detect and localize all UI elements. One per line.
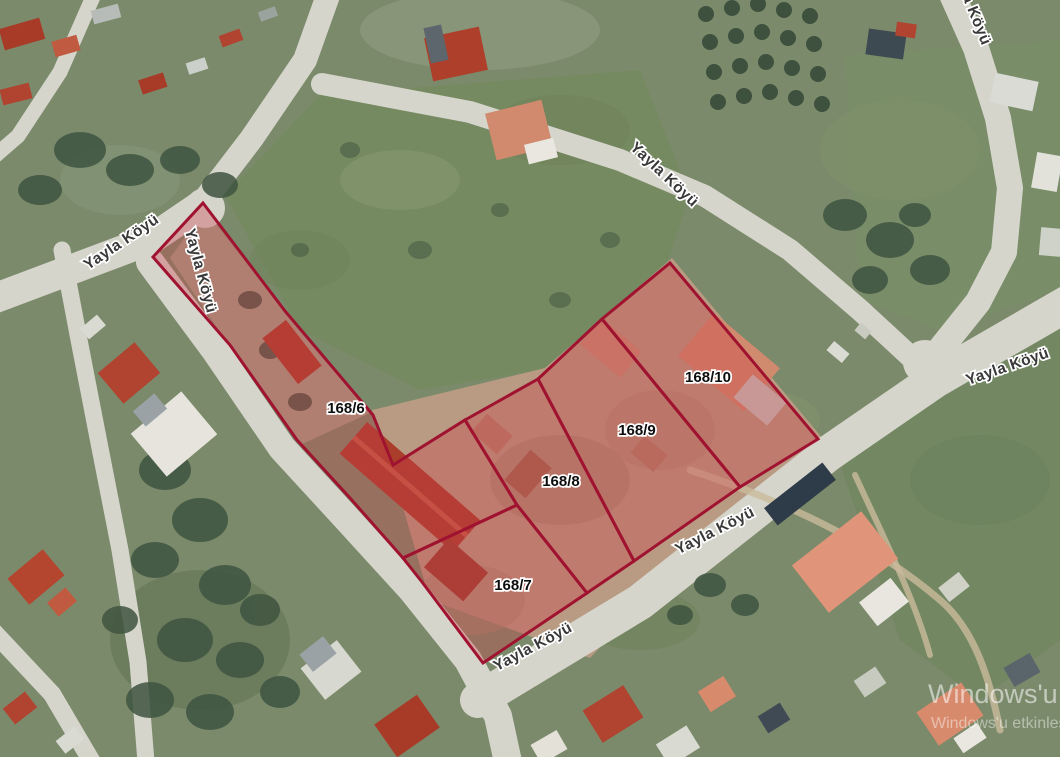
parcel-label-168-6: 168/6 [327, 400, 365, 417]
windows-activation-watermark: Windows'u Windows'u etkinleşt [928, 679, 1060, 732]
map-viewport[interactable]: 168/6 168/7 168/8 168/9 168/10 Yayla Köy… [0, 0, 1060, 757]
parcel-label-168-9: 168/9 [618, 422, 656, 439]
parcel-label-168-8: 168/8 [542, 473, 580, 490]
windows-watermark-line1: Windows'u [928, 679, 1058, 709]
orchard [698, 0, 830, 112]
windows-watermark-line2: Windows'u etkinleşt [931, 715, 1060, 732]
parcel-label-168-10: 168/10 [685, 369, 731, 386]
map-canvas: 168/6 168/7 168/8 168/9 168/10 Yayla Köy… [0, 0, 1060, 757]
parcel-label-168-7: 168/7 [494, 577, 532, 594]
